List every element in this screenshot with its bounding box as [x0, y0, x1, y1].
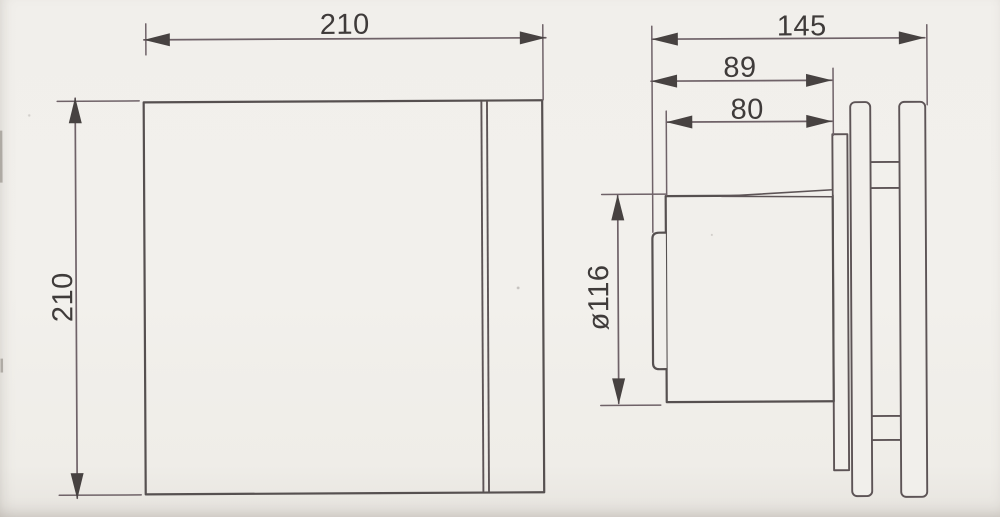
scanned-technical-drawing: 210 210 [0, 0, 1000, 517]
arrowhead-down [612, 378, 625, 404]
front-panel-outline [144, 100, 545, 494]
drawing-content: 210 210 [0, 6, 929, 502]
side-depth-80-label: 80 [731, 94, 764, 126]
arrowhead-left [651, 75, 677, 88]
front-panel-seam-line-left [481, 101, 483, 492]
side-front-cover-edge [652, 233, 666, 370]
dimension-side-depth-80: 80 [666, 93, 833, 195]
side-depth-89-label: 89 [723, 52, 756, 84]
dimension-front-height: 210 [46, 97, 141, 499]
arrowhead-right [899, 31, 925, 44]
dust-speck [711, 234, 713, 236]
front-height-label: 210 [47, 272, 79, 322]
front-panel-seam-line-right [487, 101, 489, 492]
side-body-top-wedge [722, 190, 833, 198]
dimension-line [618, 195, 619, 403]
scan-artifacts [0, 111, 714, 373]
extension-line [652, 26, 653, 232]
arrowhead-left [666, 115, 692, 128]
side-backplate [832, 134, 849, 470]
front-width-label: 210 [320, 9, 370, 41]
side-mount-plate-outer [899, 102, 927, 497]
arrowhead-right [520, 31, 546, 44]
dust-speck [517, 286, 520, 289]
dimension-front-width: 210 [144, 8, 546, 102]
arrowhead-up [611, 194, 624, 220]
side-total-depth-label: 145 [777, 10, 827, 42]
arrowhead-right [806, 74, 832, 87]
dust-speck [28, 114, 30, 116]
arrowhead-left [652, 33, 678, 46]
edge-smudge [0, 131, 3, 183]
side-body [666, 195, 834, 402]
front-view [144, 100, 545, 494]
edge-smudge [1, 359, 4, 373]
arrowhead-right [806, 115, 832, 128]
side-view [652, 102, 928, 498]
arrowhead-left [144, 33, 170, 46]
side-diameter-label: ø116 [583, 264, 615, 330]
fan-dimension-diagram: 210 210 [0, 0, 1000, 517]
side-mount-plate-inner [850, 102, 872, 496]
